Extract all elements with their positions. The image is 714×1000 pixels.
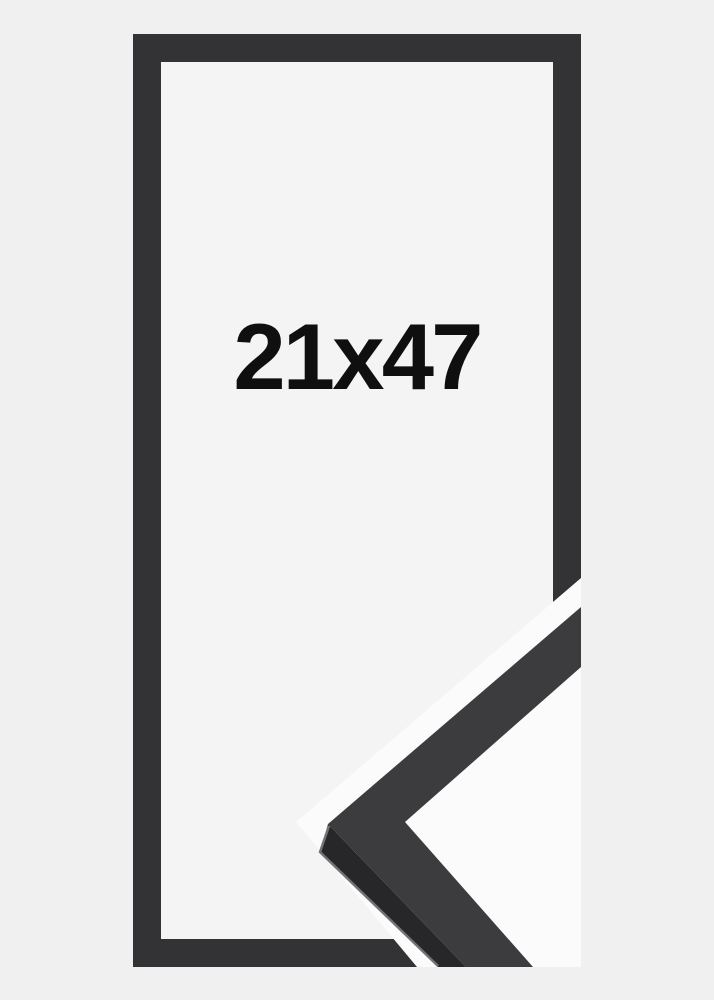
frame-size-label: 21x47 [133, 310, 581, 404]
frame-illustration [0, 0, 714, 1000]
product-image: 21x47 [0, 0, 714, 1000]
